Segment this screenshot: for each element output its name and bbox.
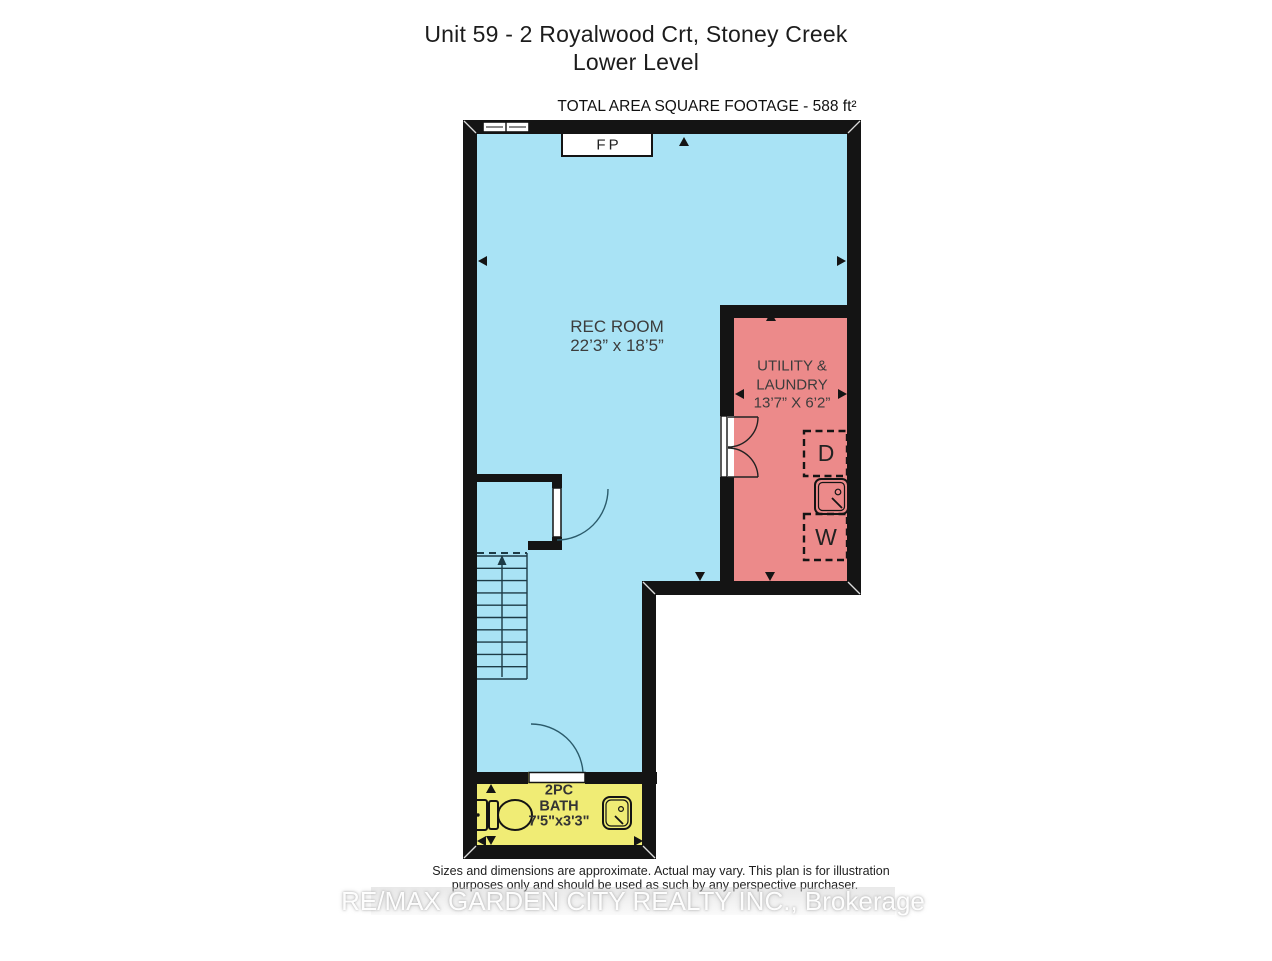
wall-right [847, 120, 861, 595]
fireplace-label: FP [596, 136, 621, 153]
wall-step [642, 581, 861, 595]
wall-lower-right [642, 581, 656, 859]
utility-room-name-line1: UTILITY & [757, 357, 827, 374]
utility-room-dims: 13’7” X 6’2” [754, 394, 831, 411]
dryer-label: D [818, 440, 835, 466]
wall-left [463, 120, 477, 859]
rec-room-dims: 22’3” x 18’5” [570, 336, 664, 356]
washer-label: W [815, 524, 837, 550]
wall-closet-top [477, 474, 562, 482]
brokerage-watermark-text: RE/MAX GARDEN CITY REALTY INC., Brokerag… [341, 886, 925, 917]
bath-name-line1: 2PC [545, 783, 573, 800]
window-symbol [483, 122, 529, 132]
wall-bath-top-left [463, 772, 528, 784]
bath-dims: 7'5"x3'3" [529, 814, 590, 831]
wall-utility-left-lower [720, 477, 734, 595]
wall-utility-left-upper [720, 305, 734, 416]
disclaimer-line1: Sizes and dimensions are approximate. Ac… [432, 864, 889, 878]
wall-stair-stub [528, 541, 562, 550]
rec-room-name: REC ROOM [570, 317, 664, 337]
floor-plan [0, 0, 1272, 961]
utility-room-name-line2: LAUNDRY [756, 376, 827, 393]
wall-bath-top-right [585, 772, 657, 784]
wall-closet-door-post-upper [552, 474, 562, 488]
brokerage-watermark: RE/MAX GARDEN CITY REALTY INC., Brokerag… [371, 887, 895, 915]
wall-bottom [463, 845, 656, 859]
wall-utility-top [721, 305, 847, 318]
